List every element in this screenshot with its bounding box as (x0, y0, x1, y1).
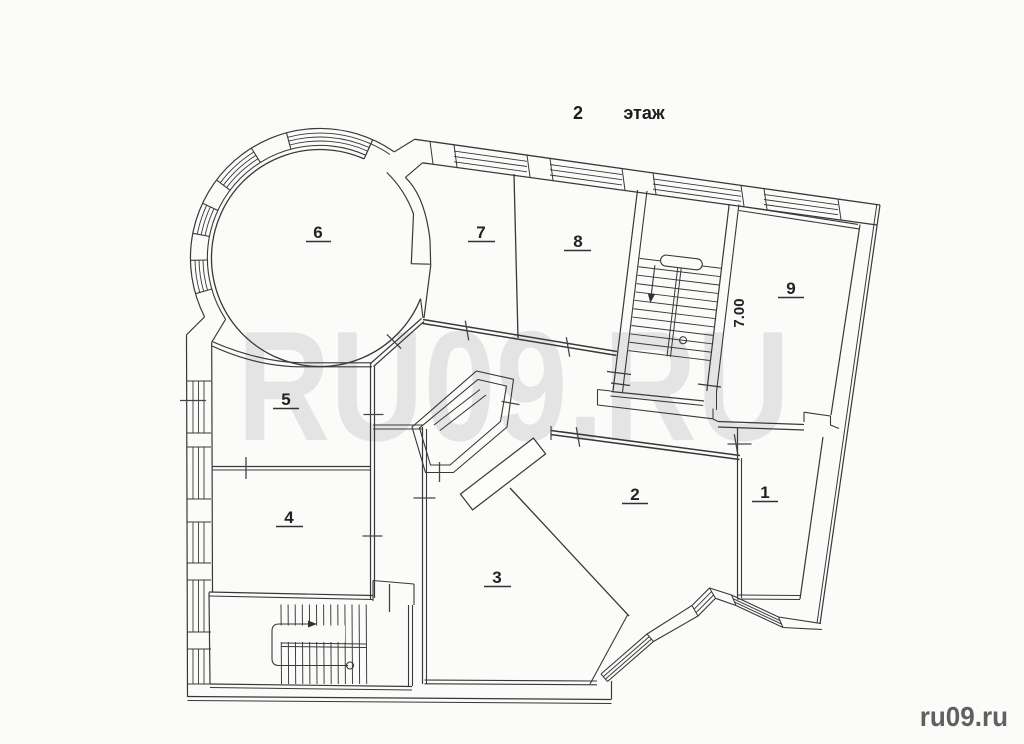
svg-text:3: 3 (492, 568, 501, 587)
svg-text:5: 5 (281, 390, 290, 409)
svg-text:1: 1 (760, 483, 769, 502)
svg-text:7: 7 (476, 223, 485, 242)
svg-text:8: 8 (573, 232, 582, 251)
svg-text:2: 2 (573, 103, 583, 123)
svg-text:9: 9 (786, 279, 795, 298)
svg-text:6: 6 (313, 223, 322, 242)
svg-text:4: 4 (284, 508, 294, 527)
svg-text:ru09.ru: ru09.ru (920, 701, 1008, 732)
svg-text:2: 2 (630, 485, 639, 504)
svg-text:7.00: 7.00 (731, 298, 748, 327)
svg-text:этаж: этаж (623, 103, 665, 123)
